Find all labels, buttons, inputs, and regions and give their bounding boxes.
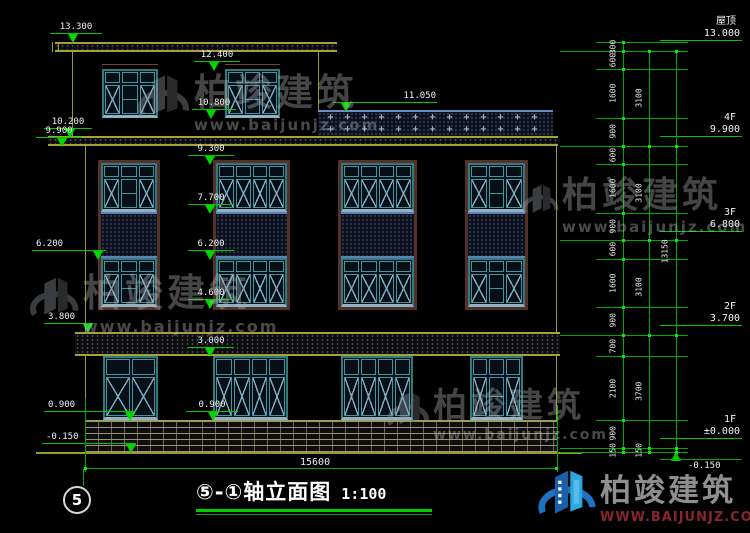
dim-tick <box>648 50 651 53</box>
floor-marker-2f: 2F 3.700 <box>660 301 742 326</box>
window-pane <box>269 274 284 303</box>
dim-tick <box>622 419 625 422</box>
window-pane <box>269 179 284 208</box>
dim-label-inner: 1600 <box>608 69 618 118</box>
window-pane <box>396 274 411 303</box>
dim-label-inner: 1600 <box>608 259 618 308</box>
dim-label-floor: 150 <box>634 448 644 453</box>
window-pane <box>269 377 285 416</box>
window-4f-right <box>225 69 280 118</box>
dim-tick <box>622 41 625 44</box>
window-pane <box>269 261 284 272</box>
cad-elevation-drawing: ++++++++++++++++++++++++++ 13.300 12.40 <box>0 0 750 533</box>
window-pane <box>269 166 284 177</box>
dim-tick <box>622 258 625 261</box>
window-3f <box>468 163 525 212</box>
window-pane <box>344 377 359 416</box>
total-width-dim: 15600 <box>300 457 330 468</box>
window-pane <box>140 85 155 114</box>
window-pane <box>139 261 154 272</box>
dim-tick <box>675 447 678 450</box>
ground-line <box>36 452 582 454</box>
window-pane <box>253 166 268 177</box>
dim-label-inner: 2100 <box>608 356 618 420</box>
dim-label-inner: 300 <box>608 42 618 51</box>
railing-pattern-row: +++++++++++++ <box>318 124 553 136</box>
window-pane <box>104 166 119 177</box>
elev-triangle <box>205 251 215 260</box>
title-scale: 1:100 <box>341 485 386 503</box>
window-pane <box>121 166 136 177</box>
dim-tick <box>622 306 625 309</box>
dim-tick <box>675 334 678 337</box>
bottom-dim-ext-left <box>85 398 86 472</box>
window-pane <box>121 261 136 272</box>
elev-marker-6200-mid: 6.200 <box>188 239 234 251</box>
window-pane <box>344 359 359 375</box>
window-pane <box>122 72 137 83</box>
window-pane <box>396 166 411 177</box>
window-pane <box>506 179 522 208</box>
window-pane <box>139 274 154 303</box>
window-pane <box>236 261 251 272</box>
dim-tick <box>84 467 87 470</box>
window-pane <box>245 85 260 114</box>
dim-tick <box>622 163 625 166</box>
window-2f <box>468 258 525 307</box>
floor-marker-roof: 屋顶 13.000 <box>660 16 742 41</box>
window-pane <box>219 261 234 272</box>
elev-marker-9900-left: 9.900 <box>36 126 82 138</box>
elev-triangle <box>205 300 215 309</box>
dim-tick <box>622 355 625 358</box>
elev-marker-0900-mid: 0.900 <box>186 400 238 412</box>
window-pane <box>471 261 487 272</box>
dim-tick <box>622 212 625 215</box>
dim-label-total-height: 13150 <box>660 51 670 452</box>
elev-triangle <box>57 138 67 147</box>
window-pane <box>344 179 359 208</box>
elev-triangle <box>126 444 136 453</box>
roof-edge-tick <box>58 42 59 52</box>
window-pane <box>361 166 376 177</box>
title-text: ⑤-①轴立面图 <box>196 480 331 504</box>
fourth-floor-slab-band <box>48 136 558 146</box>
elev-marker-neg150-left: -0.150 <box>42 432 136 444</box>
spandrel-panel <box>341 212 414 258</box>
window-pane <box>105 85 120 114</box>
dim-tick <box>648 447 651 450</box>
window-pane <box>104 261 119 272</box>
spandrel-panel <box>468 212 525 258</box>
brand-logo: 柏竣建筑 WWW.BAIJUNJZ.COM <box>534 462 750 528</box>
elev-marker-11050: 11.050 <box>333 91 437 103</box>
dim-line-floor <box>649 51 650 452</box>
window-pane <box>361 274 376 303</box>
roof-railing: ++++++++++++++++++++++++++ <box>318 110 553 136</box>
dim-tick <box>622 117 625 120</box>
window-pane <box>489 166 505 177</box>
window-pane <box>396 261 411 272</box>
window-pane <box>122 85 137 114</box>
dim-tick <box>622 334 625 337</box>
title-underline-thin <box>196 514 432 515</box>
window-pane <box>253 274 268 303</box>
window-pane <box>234 359 250 375</box>
window-pane <box>378 377 393 416</box>
elev-marker-4600: 4.600 <box>188 288 234 300</box>
window-pane <box>378 359 393 375</box>
window-pane <box>104 179 119 208</box>
dim-label-floor: 3100 <box>634 51 644 146</box>
window-pane <box>395 359 410 375</box>
dim-tick <box>622 50 625 53</box>
dim-tick <box>622 145 625 148</box>
elev-triangle <box>83 324 93 333</box>
window-pane <box>269 359 285 375</box>
window-pane <box>473 377 487 416</box>
brick-plinth <box>85 420 557 452</box>
dim-line-inner <box>623 42 624 452</box>
elev-triangle <box>205 205 215 214</box>
window-pane <box>252 359 268 375</box>
dim-label-inner: 600 <box>608 240 618 258</box>
dim-label-inner: 900 <box>608 118 618 145</box>
window-pane <box>245 72 260 83</box>
window-pane <box>139 179 154 208</box>
window-pane <box>253 179 268 208</box>
dim-label-floor: 3100 <box>634 146 644 241</box>
window-pane <box>252 377 268 416</box>
dim-label-inner: 900 <box>608 307 618 334</box>
window-pane <box>262 72 277 83</box>
elev-marker-7700: 7.700 <box>188 193 234 205</box>
window-1f <box>470 356 523 420</box>
spandrel-panel <box>216 212 287 258</box>
window-pane <box>106 359 130 375</box>
dim-tick <box>675 239 678 242</box>
window-pane <box>361 359 376 375</box>
window-pane <box>121 274 136 303</box>
floor-marker-1f: 1F ±0.000 <box>660 414 742 439</box>
window-pane <box>121 179 136 208</box>
floor-marker-4f: 4F 9.900 <box>660 112 742 137</box>
window-pane <box>506 359 520 375</box>
dim-label-inner: 900 <box>608 213 618 240</box>
dim-tick <box>675 50 678 53</box>
window-pane <box>344 274 359 303</box>
spandrel-panel <box>101 212 157 258</box>
dim-label-inner: 700 <box>608 335 618 356</box>
window-pane <box>379 261 394 272</box>
window-pane <box>473 359 487 375</box>
elev-triangle <box>341 103 351 112</box>
elev-marker-3800: 3.800 <box>44 312 94 324</box>
elev-triangle <box>125 412 135 421</box>
elev-marker-10800: 10.800 <box>192 98 236 110</box>
axis-leader-line <box>83 469 84 486</box>
dim-label-inner: 600 <box>608 146 618 164</box>
elev-marker-neg150-right: -0.150 <box>688 461 721 471</box>
elev-marker-12400: 12.400 <box>194 50 240 62</box>
elev-triangle <box>208 412 218 421</box>
window-1f <box>341 356 413 420</box>
window-pane <box>140 72 155 83</box>
dim-tick <box>622 447 625 450</box>
window-pane <box>506 261 522 272</box>
lintel <box>225 64 280 65</box>
window-pane <box>471 166 487 177</box>
dim-tick <box>648 239 651 242</box>
dim-tick <box>622 451 625 454</box>
window-pane <box>236 179 251 208</box>
neg150-line <box>660 459 742 460</box>
window-pane <box>506 166 522 177</box>
dim-label-floor: 3700 <box>634 335 644 448</box>
window-pane <box>379 274 394 303</box>
window-3f <box>341 163 414 212</box>
window-4f-left <box>102 69 158 118</box>
railing-pattern-row: +++++++++++++ <box>318 112 553 124</box>
elev-triangle <box>209 62 219 71</box>
second-floor-slab-band <box>75 332 560 356</box>
window-2f <box>341 258 414 307</box>
window-pane <box>489 377 503 416</box>
window-pane <box>471 274 487 303</box>
window-3f <box>101 163 157 212</box>
window-pane <box>216 359 232 375</box>
elev-marker-13300: 13.300 <box>50 22 102 34</box>
window-pane <box>379 179 394 208</box>
window-strip <box>338 160 417 310</box>
axis-bubble-5: 5 <box>63 486 91 514</box>
dim-label-inner: 1600 <box>608 164 618 213</box>
elev-marker-3000: 3.000 <box>188 336 234 348</box>
penthouse-right-wall <box>318 52 319 110</box>
lintel <box>102 64 158 65</box>
bottom-dim-ext-right <box>557 405 558 472</box>
window-pane <box>262 85 277 114</box>
dim-tick <box>622 68 625 71</box>
dim-tick <box>648 145 651 148</box>
dim-tick <box>675 451 678 454</box>
window-pane <box>361 179 376 208</box>
dim-label-floor: 3100 <box>634 240 644 335</box>
brand-logo-icon <box>534 462 600 528</box>
window-pane <box>489 179 505 208</box>
window-pane <box>396 179 411 208</box>
window-pane <box>489 359 503 375</box>
window-pane <box>489 274 505 303</box>
window-pane <box>139 166 154 177</box>
window-pane <box>219 166 234 177</box>
window-pane <box>236 274 251 303</box>
dim-tick <box>622 239 625 242</box>
dim-tick <box>648 334 651 337</box>
floor-marker-3f: 3F 6.800 <box>660 207 742 232</box>
window-pane <box>344 261 359 272</box>
dim-tick <box>648 451 651 454</box>
roof-edge-tick <box>52 42 53 52</box>
window-pane <box>253 261 268 272</box>
window-2f <box>101 258 157 307</box>
elev-triangle <box>93 251 103 260</box>
elev-triangle <box>68 34 78 43</box>
dim-label-inner: 150 <box>608 448 618 453</box>
elev-triangle <box>205 156 215 165</box>
elev-marker-0900-left: 0.900 <box>44 400 136 412</box>
window-strip <box>465 160 528 310</box>
bottom-dim-line <box>85 468 558 469</box>
window-strip <box>98 160 160 310</box>
window-pane <box>471 179 487 208</box>
drawing-title: ⑤-①轴立面图1:100 <box>196 476 432 515</box>
elev-marker-9300: 9.300 <box>188 144 234 156</box>
window-pane <box>132 359 156 375</box>
dim-line-total <box>676 51 677 458</box>
window-pane <box>506 274 522 303</box>
dim-label-inner: 600 <box>608 51 618 69</box>
elev-triangle <box>206 110 216 119</box>
window-pane <box>379 166 394 177</box>
window-pane <box>104 274 119 303</box>
window-pane <box>489 261 505 272</box>
dim-tick <box>675 145 678 148</box>
window-pane <box>105 72 120 83</box>
window-pane <box>236 166 251 177</box>
title-underline <box>196 509 432 512</box>
window-pane <box>361 261 376 272</box>
elev-triangle <box>205 348 215 357</box>
elev-marker-6200-left: 6.200 <box>32 239 106 251</box>
window-pane <box>361 377 376 416</box>
window-pane <box>395 377 410 416</box>
window-pane <box>228 72 243 83</box>
window-pane <box>344 166 359 177</box>
dim-tick <box>555 467 558 470</box>
window-pane <box>506 377 520 416</box>
